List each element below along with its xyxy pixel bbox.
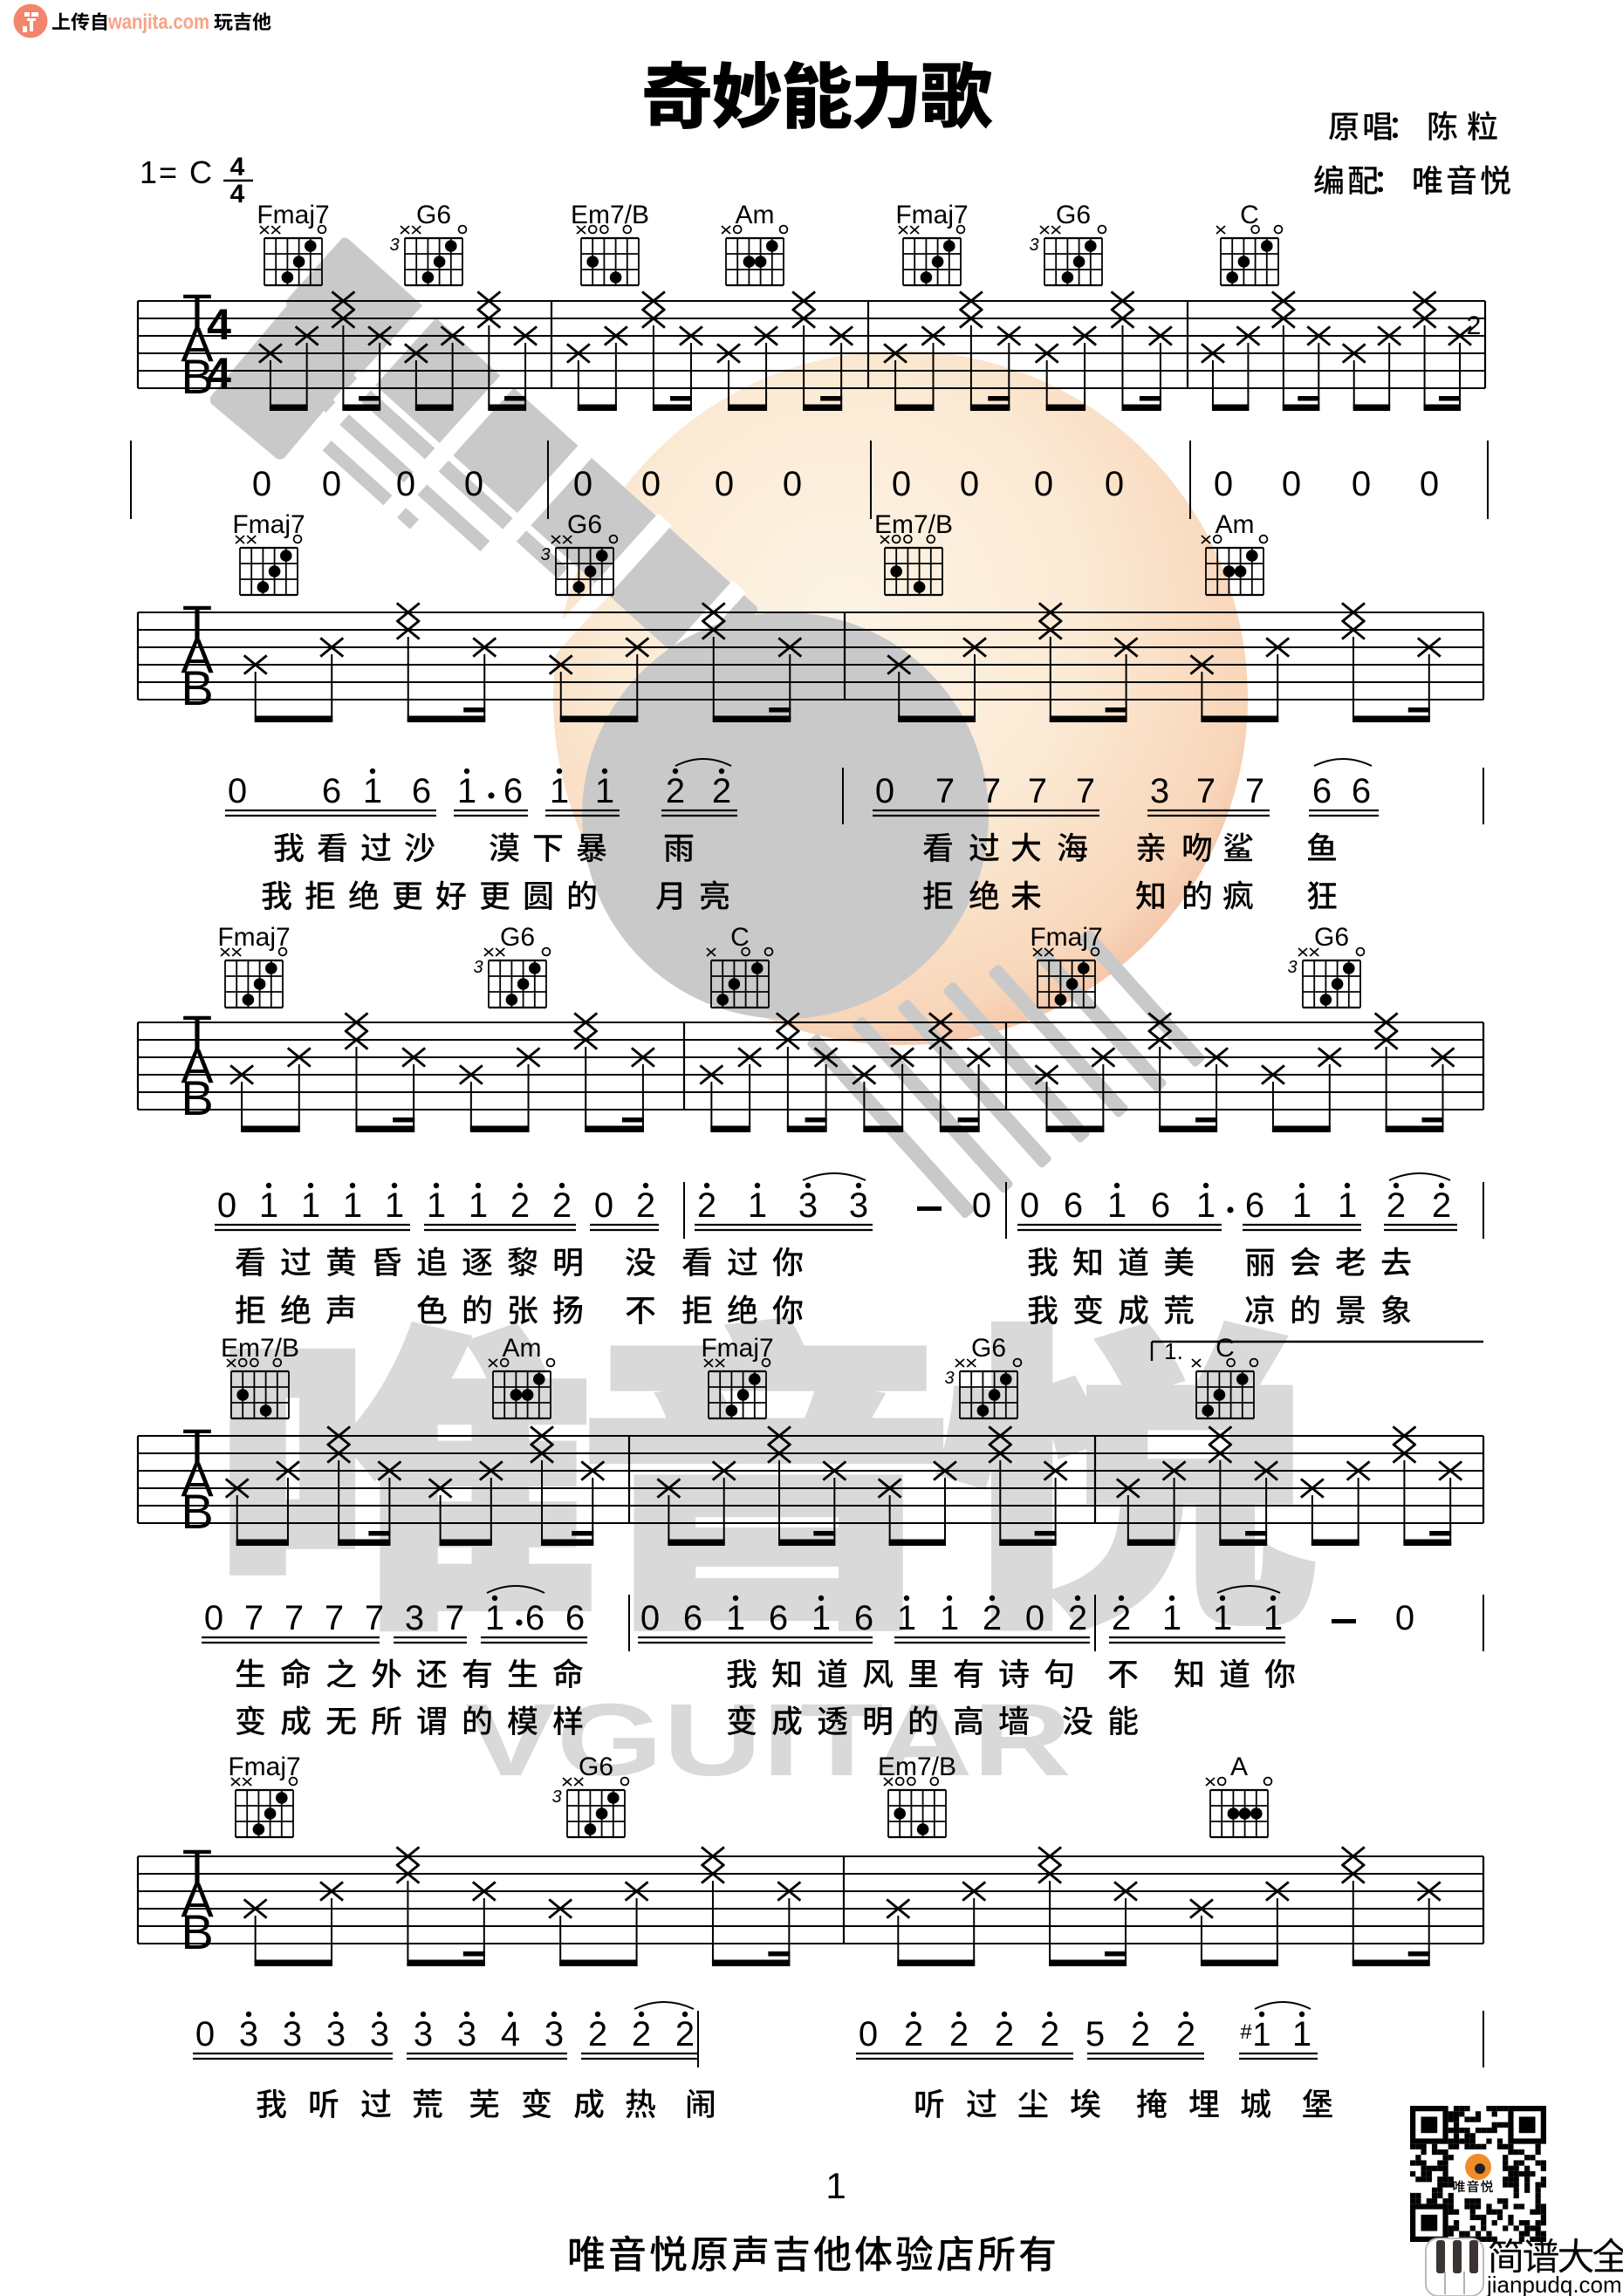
svg-text:Fmaj7: Fmaj7 (217, 923, 290, 952)
svg-text:6: 6 (503, 772, 523, 810)
svg-text:Fmaj7: Fmaj7 (895, 201, 968, 229)
svg-text:0: 0 (1034, 465, 1053, 503)
svg-text:Fmaj7: Fmaj7 (232, 510, 305, 539)
svg-text:2: 2 (666, 772, 685, 810)
svg-text:6: 6 (1151, 1186, 1170, 1225)
svg-text:4: 4 (207, 349, 231, 398)
svg-text:G6: G6 (416, 201, 451, 229)
svg-text:0: 0 (1025, 1599, 1044, 1637)
svg-text:1: 1 (811, 1599, 831, 1637)
svg-text:6: 6 (412, 772, 431, 810)
svg-text:5: 5 (1085, 2015, 1105, 2053)
svg-text:G6: G6 (1056, 201, 1091, 229)
svg-text:1: 1 (1196, 1186, 1216, 1225)
svg-text:7: 7 (325, 1599, 344, 1637)
svg-text:0: 0 (396, 465, 415, 503)
svg-text:2: 2 (1040, 2015, 1059, 2053)
svg-text:0: 0 (640, 1599, 660, 1637)
svg-text:Em7/B: Em7/B (221, 1334, 299, 1363)
svg-text:B: B (181, 1904, 213, 1959)
svg-text:6: 6 (1352, 772, 1371, 810)
svg-text:0: 0 (594, 1186, 613, 1225)
svg-text:7: 7 (1028, 772, 1047, 810)
svg-text:A: A (1230, 1753, 1248, 1781)
svg-text:0: 0 (715, 465, 734, 503)
svg-text:1: 1 (259, 1186, 278, 1225)
svg-text:3: 3 (473, 958, 483, 977)
svg-text:0: 0 (783, 465, 802, 503)
svg-text:1.: 1. (1164, 1338, 1183, 1364)
svg-text:0: 0 (322, 465, 341, 503)
svg-text:0: 0 (252, 465, 271, 503)
svg-text:1: 1 (940, 1599, 959, 1637)
svg-text:7: 7 (1076, 772, 1095, 810)
svg-text:3: 3 (1150, 772, 1169, 810)
svg-text:2: 2 (1467, 311, 1482, 340)
svg-text:G6: G6 (1314, 923, 1349, 952)
svg-text:G6: G6 (500, 923, 535, 952)
svg-text:0: 0 (972, 1186, 991, 1225)
svg-text:3: 3 (326, 2015, 346, 2053)
svg-text:7: 7 (1245, 772, 1264, 810)
svg-text:7: 7 (1196, 772, 1216, 810)
svg-text:6: 6 (1312, 772, 1332, 810)
svg-text:1= C: 1= C (140, 154, 214, 190)
svg-text:7: 7 (935, 772, 955, 810)
svg-text:2: 2 (1068, 1599, 1087, 1637)
svg-text:Fmaj7: Fmaj7 (1030, 923, 1102, 952)
svg-text:3: 3 (1287, 958, 1297, 977)
svg-text:wanjita.com: wanjita.com (107, 10, 209, 34)
svg-text:0: 0 (892, 465, 911, 503)
svg-text:1: 1 (825, 2165, 846, 2206)
svg-text:2: 2 (1432, 1186, 1451, 1225)
svg-text:2: 2 (697, 1186, 716, 1225)
svg-text:2: 2 (904, 2015, 923, 2053)
svg-text:1: 1 (595, 772, 614, 810)
svg-text:Fmaj7: Fmaj7 (701, 1334, 773, 1363)
svg-text:Em7/B: Em7/B (874, 510, 953, 539)
svg-text:0: 0 (217, 1186, 236, 1225)
svg-text:2: 2 (949, 2015, 969, 2053)
svg-text:1: 1 (1292, 1186, 1311, 1225)
svg-text:3: 3 (283, 2015, 302, 2053)
svg-text:2: 2 (675, 2015, 695, 2053)
svg-text:B: B (181, 660, 213, 715)
svg-text:0: 0 (960, 465, 979, 503)
svg-text:7: 7 (284, 1599, 304, 1637)
svg-text:4: 4 (230, 180, 245, 208)
svg-text:0: 0 (1020, 1186, 1039, 1225)
svg-text:6: 6 (683, 1599, 702, 1637)
svg-text:1: 1 (1107, 1186, 1127, 1225)
svg-text:3: 3 (389, 236, 399, 255)
svg-text:0: 0 (1352, 465, 1371, 503)
svg-text:0: 0 (1420, 465, 1439, 503)
svg-text:7: 7 (982, 772, 1001, 810)
svg-text:3: 3 (457, 2015, 476, 2053)
svg-text:1: 1 (1162, 1599, 1181, 1637)
svg-text:3: 3 (239, 2015, 258, 2053)
svg-text:Em7/B: Em7/B (571, 201, 649, 229)
svg-text:3: 3 (798, 1186, 818, 1225)
svg-text:0: 0 (1214, 465, 1233, 503)
svg-text:6: 6 (1245, 1186, 1264, 1225)
svg-text:2: 2 (712, 772, 731, 810)
svg-text:0: 0 (195, 2015, 215, 2053)
svg-text:0: 0 (1395, 1599, 1414, 1637)
svg-text:0: 0 (228, 772, 247, 810)
svg-text:2: 2 (552, 1186, 572, 1225)
svg-text:2: 2 (510, 1186, 530, 1225)
svg-text:Fmaj7: Fmaj7 (257, 201, 329, 229)
svg-text:2: 2 (1176, 2015, 1195, 2053)
svg-text:3: 3 (540, 545, 550, 564)
svg-text:2: 2 (588, 2015, 607, 2053)
svg-text:Em7/B: Em7/B (878, 1753, 956, 1781)
svg-text:4: 4 (501, 2015, 520, 2053)
svg-text:6: 6 (565, 1599, 585, 1637)
svg-text:1: 1 (550, 772, 569, 810)
svg-text:1: 1 (1292, 2015, 1311, 2053)
svg-text:Am: Am (1216, 510, 1255, 539)
svg-text:7: 7 (244, 1599, 264, 1637)
svg-text:6: 6 (525, 1599, 544, 1637)
svg-text:Am: Am (503, 1334, 542, 1363)
svg-text:B: B (181, 1484, 213, 1539)
svg-text:1: 1 (427, 1186, 446, 1225)
svg-text:3: 3 (544, 2015, 564, 2053)
svg-text:3: 3 (414, 2015, 433, 2053)
svg-text:0: 0 (573, 465, 592, 503)
svg-text:6: 6 (854, 1599, 873, 1637)
svg-text:3: 3 (1029, 236, 1038, 255)
svg-text:Am: Am (736, 201, 775, 229)
svg-text:1: 1 (385, 1186, 404, 1225)
svg-text:1: 1 (1263, 1599, 1283, 1637)
svg-text:2: 2 (1387, 1186, 1406, 1225)
svg-text:0: 0 (875, 772, 894, 810)
svg-text:4: 4 (207, 300, 231, 349)
svg-text:jianpudq.com: jianpudq.com (1486, 2272, 1622, 2296)
svg-text:1: 1 (1338, 1186, 1357, 1225)
svg-text:7: 7 (365, 1599, 384, 1637)
svg-text:1: 1 (469, 1186, 488, 1225)
svg-text:G6: G6 (579, 1753, 613, 1781)
svg-text:1: 1 (726, 1599, 745, 1637)
svg-text:0: 0 (204, 1599, 223, 1637)
svg-text:0: 0 (859, 2015, 878, 2053)
svg-text:#: # (1240, 2020, 1252, 2044)
svg-text:1: 1 (363, 772, 382, 810)
svg-text:2: 2 (983, 1599, 1002, 1637)
svg-text:3: 3 (944, 1369, 954, 1388)
svg-text:1: 1 (748, 1186, 767, 1225)
svg-text:0: 0 (1282, 465, 1301, 503)
svg-text:6: 6 (769, 1599, 788, 1637)
svg-text:1: 1 (1252, 2017, 1270, 2053)
svg-text:2: 2 (636, 1186, 655, 1225)
svg-text:2: 2 (995, 2015, 1014, 2053)
svg-text:0: 0 (1105, 465, 1124, 503)
svg-text:3: 3 (551, 1787, 561, 1807)
svg-text:1: 1 (897, 1599, 916, 1637)
svg-text:Fmaj7: Fmaj7 (228, 1753, 300, 1781)
svg-text:6: 6 (1064, 1186, 1083, 1225)
svg-text:1: 1 (343, 1186, 362, 1225)
svg-text:G6: G6 (567, 510, 602, 539)
svg-text:G6: G6 (971, 1334, 1006, 1363)
svg-text:2: 2 (632, 2015, 651, 2053)
svg-text:6: 6 (322, 772, 341, 810)
svg-text:2: 2 (1112, 1599, 1131, 1637)
svg-text:0: 0 (641, 465, 661, 503)
svg-text:3: 3 (405, 1599, 424, 1637)
svg-text:1: 1 (457, 772, 476, 810)
svg-text:0: 0 (464, 465, 483, 503)
svg-text:4: 4 (230, 153, 245, 181)
svg-text:3: 3 (849, 1186, 868, 1225)
svg-text:VGUITAR: VGUITAR (465, 1683, 1072, 1798)
svg-text:3: 3 (370, 2015, 389, 2053)
svg-text:1: 1 (485, 1599, 504, 1637)
svg-text:7: 7 (445, 1599, 464, 1637)
svg-text:B: B (181, 1070, 213, 1125)
svg-text:1: 1 (301, 1186, 320, 1225)
svg-text:1: 1 (1213, 1599, 1232, 1637)
svg-text:2: 2 (1131, 2015, 1150, 2053)
